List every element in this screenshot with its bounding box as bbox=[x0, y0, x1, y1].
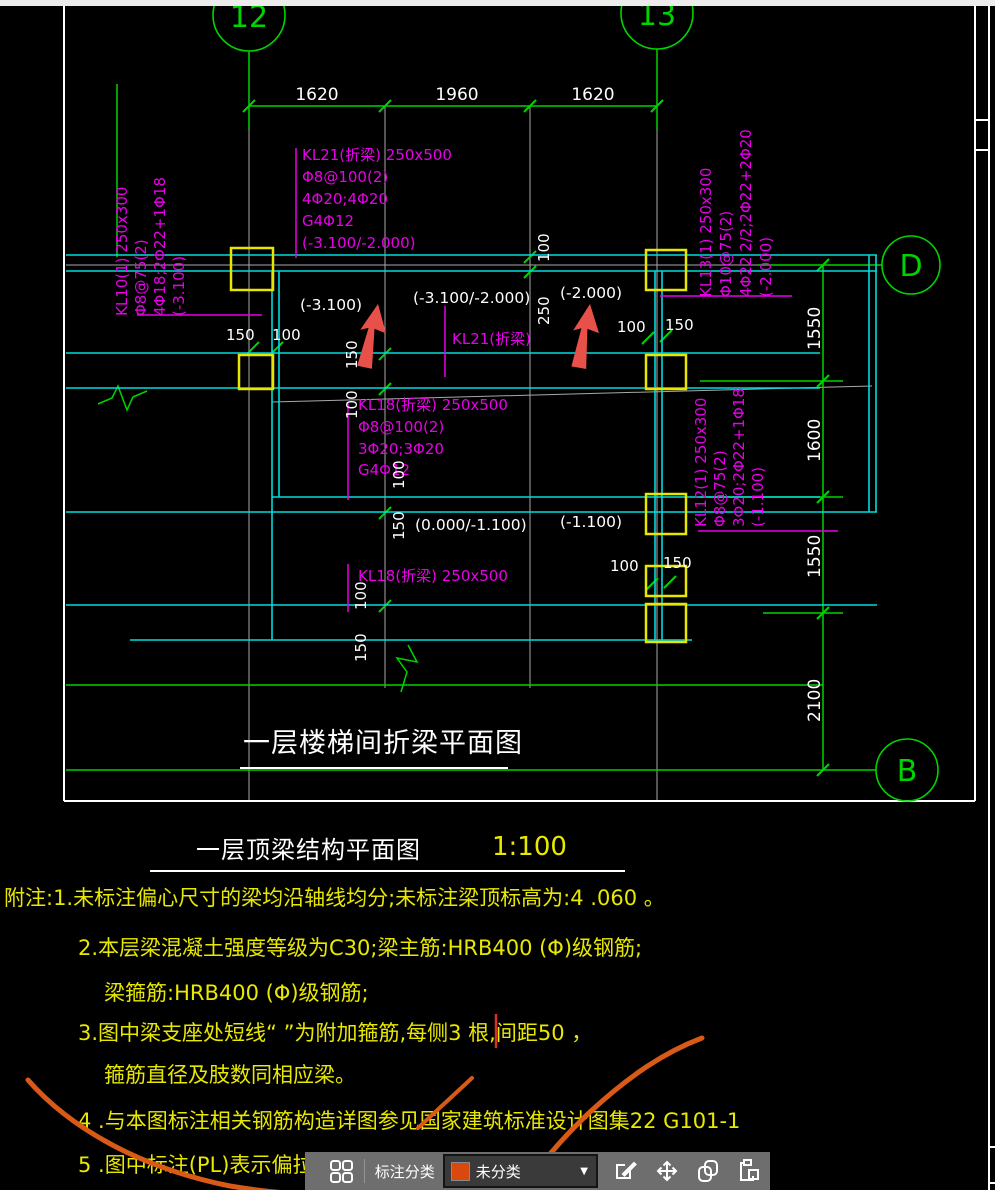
dim-100-v2: 100 bbox=[390, 460, 408, 489]
dim-100-right: 100 bbox=[617, 318, 646, 336]
note-line-4: 3.图中梁支座处短线“ ”为附加箍筋,每侧3 根,间距50 ， bbox=[78, 1021, 592, 1045]
kl13-line4: (-2.000) bbox=[757, 237, 775, 297]
kl21-line3: 4Φ20;4Φ20 bbox=[302, 190, 388, 208]
cad-canvas[interactable]: KL21(折梁) 250x500 Φ8@100(2) 4Φ20;4Φ20 G4Φ… bbox=[0, 0, 995, 1190]
dim-250-v: 250 bbox=[535, 296, 553, 325]
elevation-5: (-1.100) bbox=[560, 513, 622, 531]
kl10-line1: KL10(1) 250x300 bbox=[113, 187, 131, 316]
dim-100-v4: 100 bbox=[535, 233, 553, 262]
annotation-toolbar: 标注分类 未分类 ▼ bbox=[305, 1152, 770, 1190]
red-arrow-right bbox=[569, 303, 602, 370]
kl12-line1: KL12(1) 250x300 bbox=[692, 398, 710, 527]
dim-100-left: 100 bbox=[272, 326, 301, 344]
copy-icon[interactable] bbox=[695, 1158, 721, 1184]
dim-150-bottom-right: 150 bbox=[663, 554, 692, 572]
kl13-line2: Φ10@75(2) bbox=[717, 211, 735, 297]
elevation-3: (-2.000) bbox=[560, 284, 622, 302]
axis-bubble-d: D bbox=[899, 249, 922, 284]
kl21-line2: Φ8@100(2) bbox=[302, 168, 388, 186]
kl12-line4: (-1.100) bbox=[749, 467, 767, 527]
kl21-line4: G4Φ12 bbox=[302, 212, 354, 230]
chevron-down-icon: ▼ bbox=[580, 1166, 588, 1177]
dim-150-v1: 150 bbox=[343, 340, 361, 369]
dim-100-bottom-right: 100 bbox=[610, 557, 639, 575]
paste-icon[interactable] bbox=[736, 1158, 762, 1184]
category-color-swatch bbox=[451, 1162, 470, 1181]
inner-title: 一层楼梯间折梁平面图 bbox=[243, 728, 523, 759]
dim-150-right: 150 bbox=[665, 316, 694, 334]
dim-150-left: 150 bbox=[226, 326, 255, 344]
top-dim-1: 1620 bbox=[295, 85, 338, 105]
axis-bubble-b: B bbox=[897, 754, 918, 789]
top-dim-3: 1620 bbox=[571, 85, 614, 105]
kl18-line3: 3Φ20;3Φ20 bbox=[358, 440, 444, 458]
note-line-1: 附注:1.未标注偏心尺寸的梁均沿轴线均分;未标注梁顶标高为:4 .060 。 bbox=[4, 886, 665, 910]
kl21-line5: (-3.100/-2.000) bbox=[302, 234, 415, 252]
general-notes: 附注:1.未标注偏心尺寸的梁均沿轴线均分;未标注梁顶标高为:4 .060 。 2… bbox=[4, 886, 740, 1177]
break-mark-left bbox=[98, 386, 147, 410]
category-grid-icon[interactable] bbox=[328, 1158, 354, 1184]
right-dim-3: 1550 bbox=[805, 535, 825, 578]
top-window-strip bbox=[0, 0, 995, 6]
right-dim-2: 1600 bbox=[805, 419, 825, 462]
kl18-line2: Φ8@100(2) bbox=[358, 418, 444, 436]
category-dropdown-value: 未分类 bbox=[476, 1161, 581, 1182]
dim-100-v3: 100 bbox=[352, 581, 370, 610]
kl13-line3: 4Φ22 2/2;2Φ22+2Φ20 bbox=[737, 129, 755, 297]
toolbar-separator bbox=[364, 1159, 365, 1183]
category-dropdown[interactable]: 未分类 ▼ bbox=[443, 1154, 598, 1188]
kl10-line4: (-3.100) bbox=[170, 256, 188, 316]
move-icon[interactable] bbox=[654, 1158, 680, 1184]
kl13-line1: KL13(1) 250x300 bbox=[697, 168, 715, 297]
drawing-titles: 一层楼梯间折梁平面图 一层顶梁结构平面图 1:100 bbox=[150, 728, 625, 871]
kl12-line2: Φ8@75(2) bbox=[711, 450, 729, 527]
elevation-2: (-3.100/-2.000) bbox=[413, 289, 530, 307]
outer-title: 一层顶梁结构平面图 bbox=[196, 836, 421, 864]
drawing-scale: 1:100 bbox=[492, 832, 567, 862]
note-line-6: 4 .与本图标注相关钢筋构造详图参见国家建筑标准设计图集22 G101-1 bbox=[78, 1109, 740, 1133]
edit-icon[interactable] bbox=[613, 1158, 639, 1184]
kl10-line3: 4Φ18;2Φ22+1Φ18 bbox=[151, 177, 169, 316]
right-dim-4: 2100 bbox=[805, 679, 825, 722]
kl10-line2: Φ8@75(2) bbox=[132, 239, 150, 316]
kl12-line3: 3Φ20;2Φ22+1Φ18 bbox=[730, 388, 748, 527]
right-dim-1: 1550 bbox=[805, 307, 825, 350]
dim-150-v3: 150 bbox=[352, 633, 370, 662]
note-line-5: 箍筋直径及肢数同相应梁。 bbox=[104, 1063, 356, 1087]
kl21-mid-label: KL21(折梁) bbox=[452, 330, 531, 348]
kl18-line1: KL18(折梁) 250x500 bbox=[358, 396, 508, 414]
kl21-line1: KL21(折梁) 250x500 bbox=[302, 146, 452, 164]
top-dim-2: 1960 bbox=[435, 85, 478, 105]
axis-bubble-labels: 12 13 D B bbox=[230, 0, 923, 789]
dim-100-v1: 100 bbox=[343, 390, 361, 419]
note-line-3: 梁箍筋:HRB400 (Φ)级钢筋; bbox=[104, 981, 369, 1005]
elevation-4: (0.000/-1.100) bbox=[415, 516, 527, 534]
elevation-1: (-3.100) bbox=[300, 296, 362, 314]
kl18-bottom-label: KL18(折梁) 250x500 bbox=[358, 567, 508, 585]
cad-application-window: KL21(折梁) 250x500 Φ8@100(2) 4Φ20;4Φ20 G4Φ… bbox=[0, 0, 995, 1190]
category-label: 标注分类 bbox=[375, 1161, 435, 1182]
dim-150-v2: 150 bbox=[390, 511, 408, 540]
note-line-2: 2.本层梁混凝土强度等级为C30;梁主筋:HRB400 (Φ)级钢筋; bbox=[78, 936, 642, 960]
